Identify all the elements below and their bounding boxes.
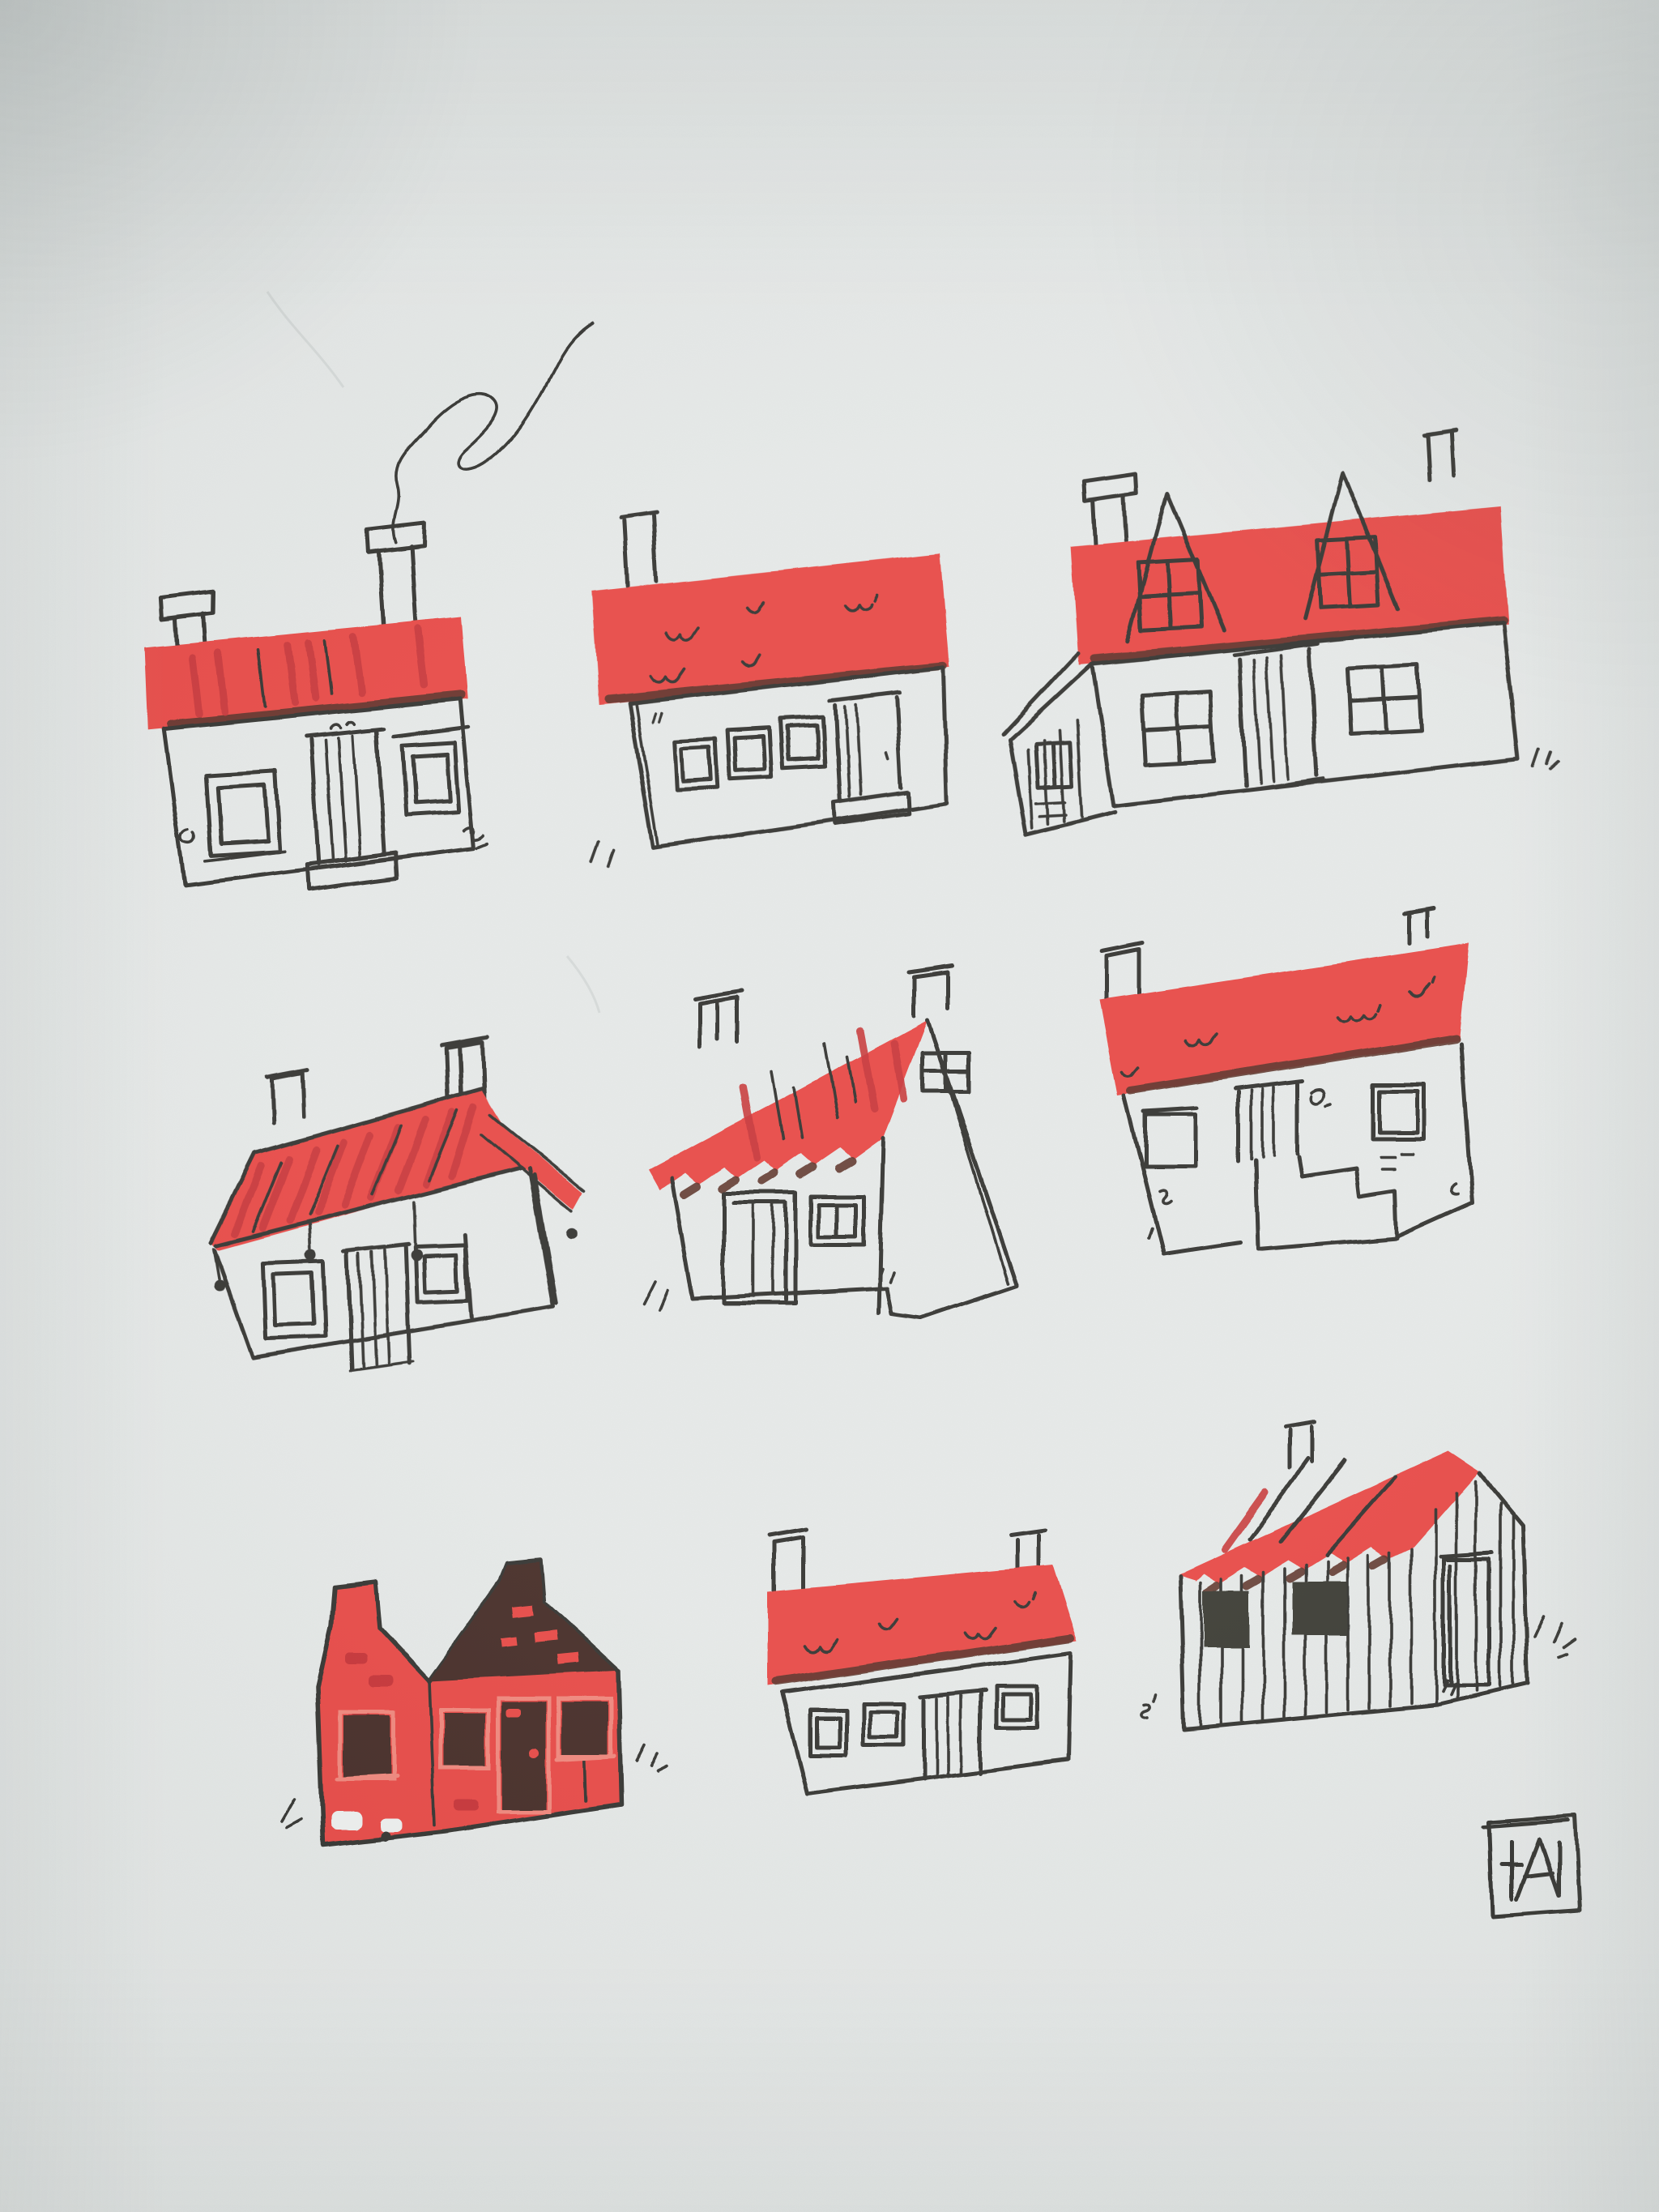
front-door: [497, 1698, 549, 1812]
dark-window-1: [1203, 1590, 1250, 1648]
window: [811, 1197, 864, 1245]
window-left: [337, 1713, 397, 1779]
window-right: [557, 1698, 614, 1760]
photo-of-ink-drawing: [0, 0, 1659, 2212]
dark-window-2: [1292, 1582, 1347, 1635]
drawing-canvas: [0, 0, 1659, 2212]
window-middle: [441, 1710, 488, 1768]
door-handle: [530, 1749, 539, 1758]
